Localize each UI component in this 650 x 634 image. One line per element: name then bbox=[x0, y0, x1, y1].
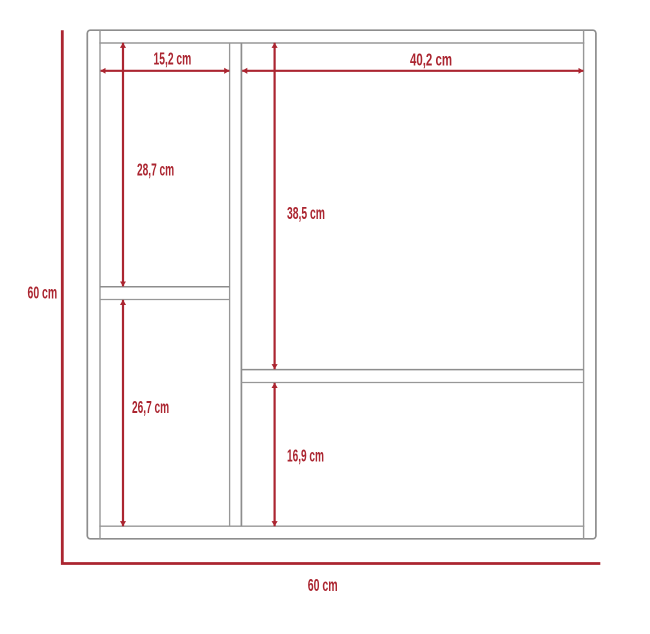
svg-text:26,7 cm: 26,7 cm bbox=[132, 397, 169, 417]
svg-text:60 cm: 60 cm bbox=[308, 575, 338, 595]
svg-text:15,2 cm: 15,2 cm bbox=[154, 48, 192, 68]
svg-text:16,9 cm: 16,9 cm bbox=[287, 446, 324, 466]
svg-text:60 cm: 60 cm bbox=[28, 283, 58, 303]
svg-text:28,7 cm: 28,7 cm bbox=[137, 160, 174, 180]
svg-text:40,2 cm: 40,2 cm bbox=[410, 50, 452, 70]
svg-text:38,5 cm: 38,5 cm bbox=[287, 203, 325, 223]
